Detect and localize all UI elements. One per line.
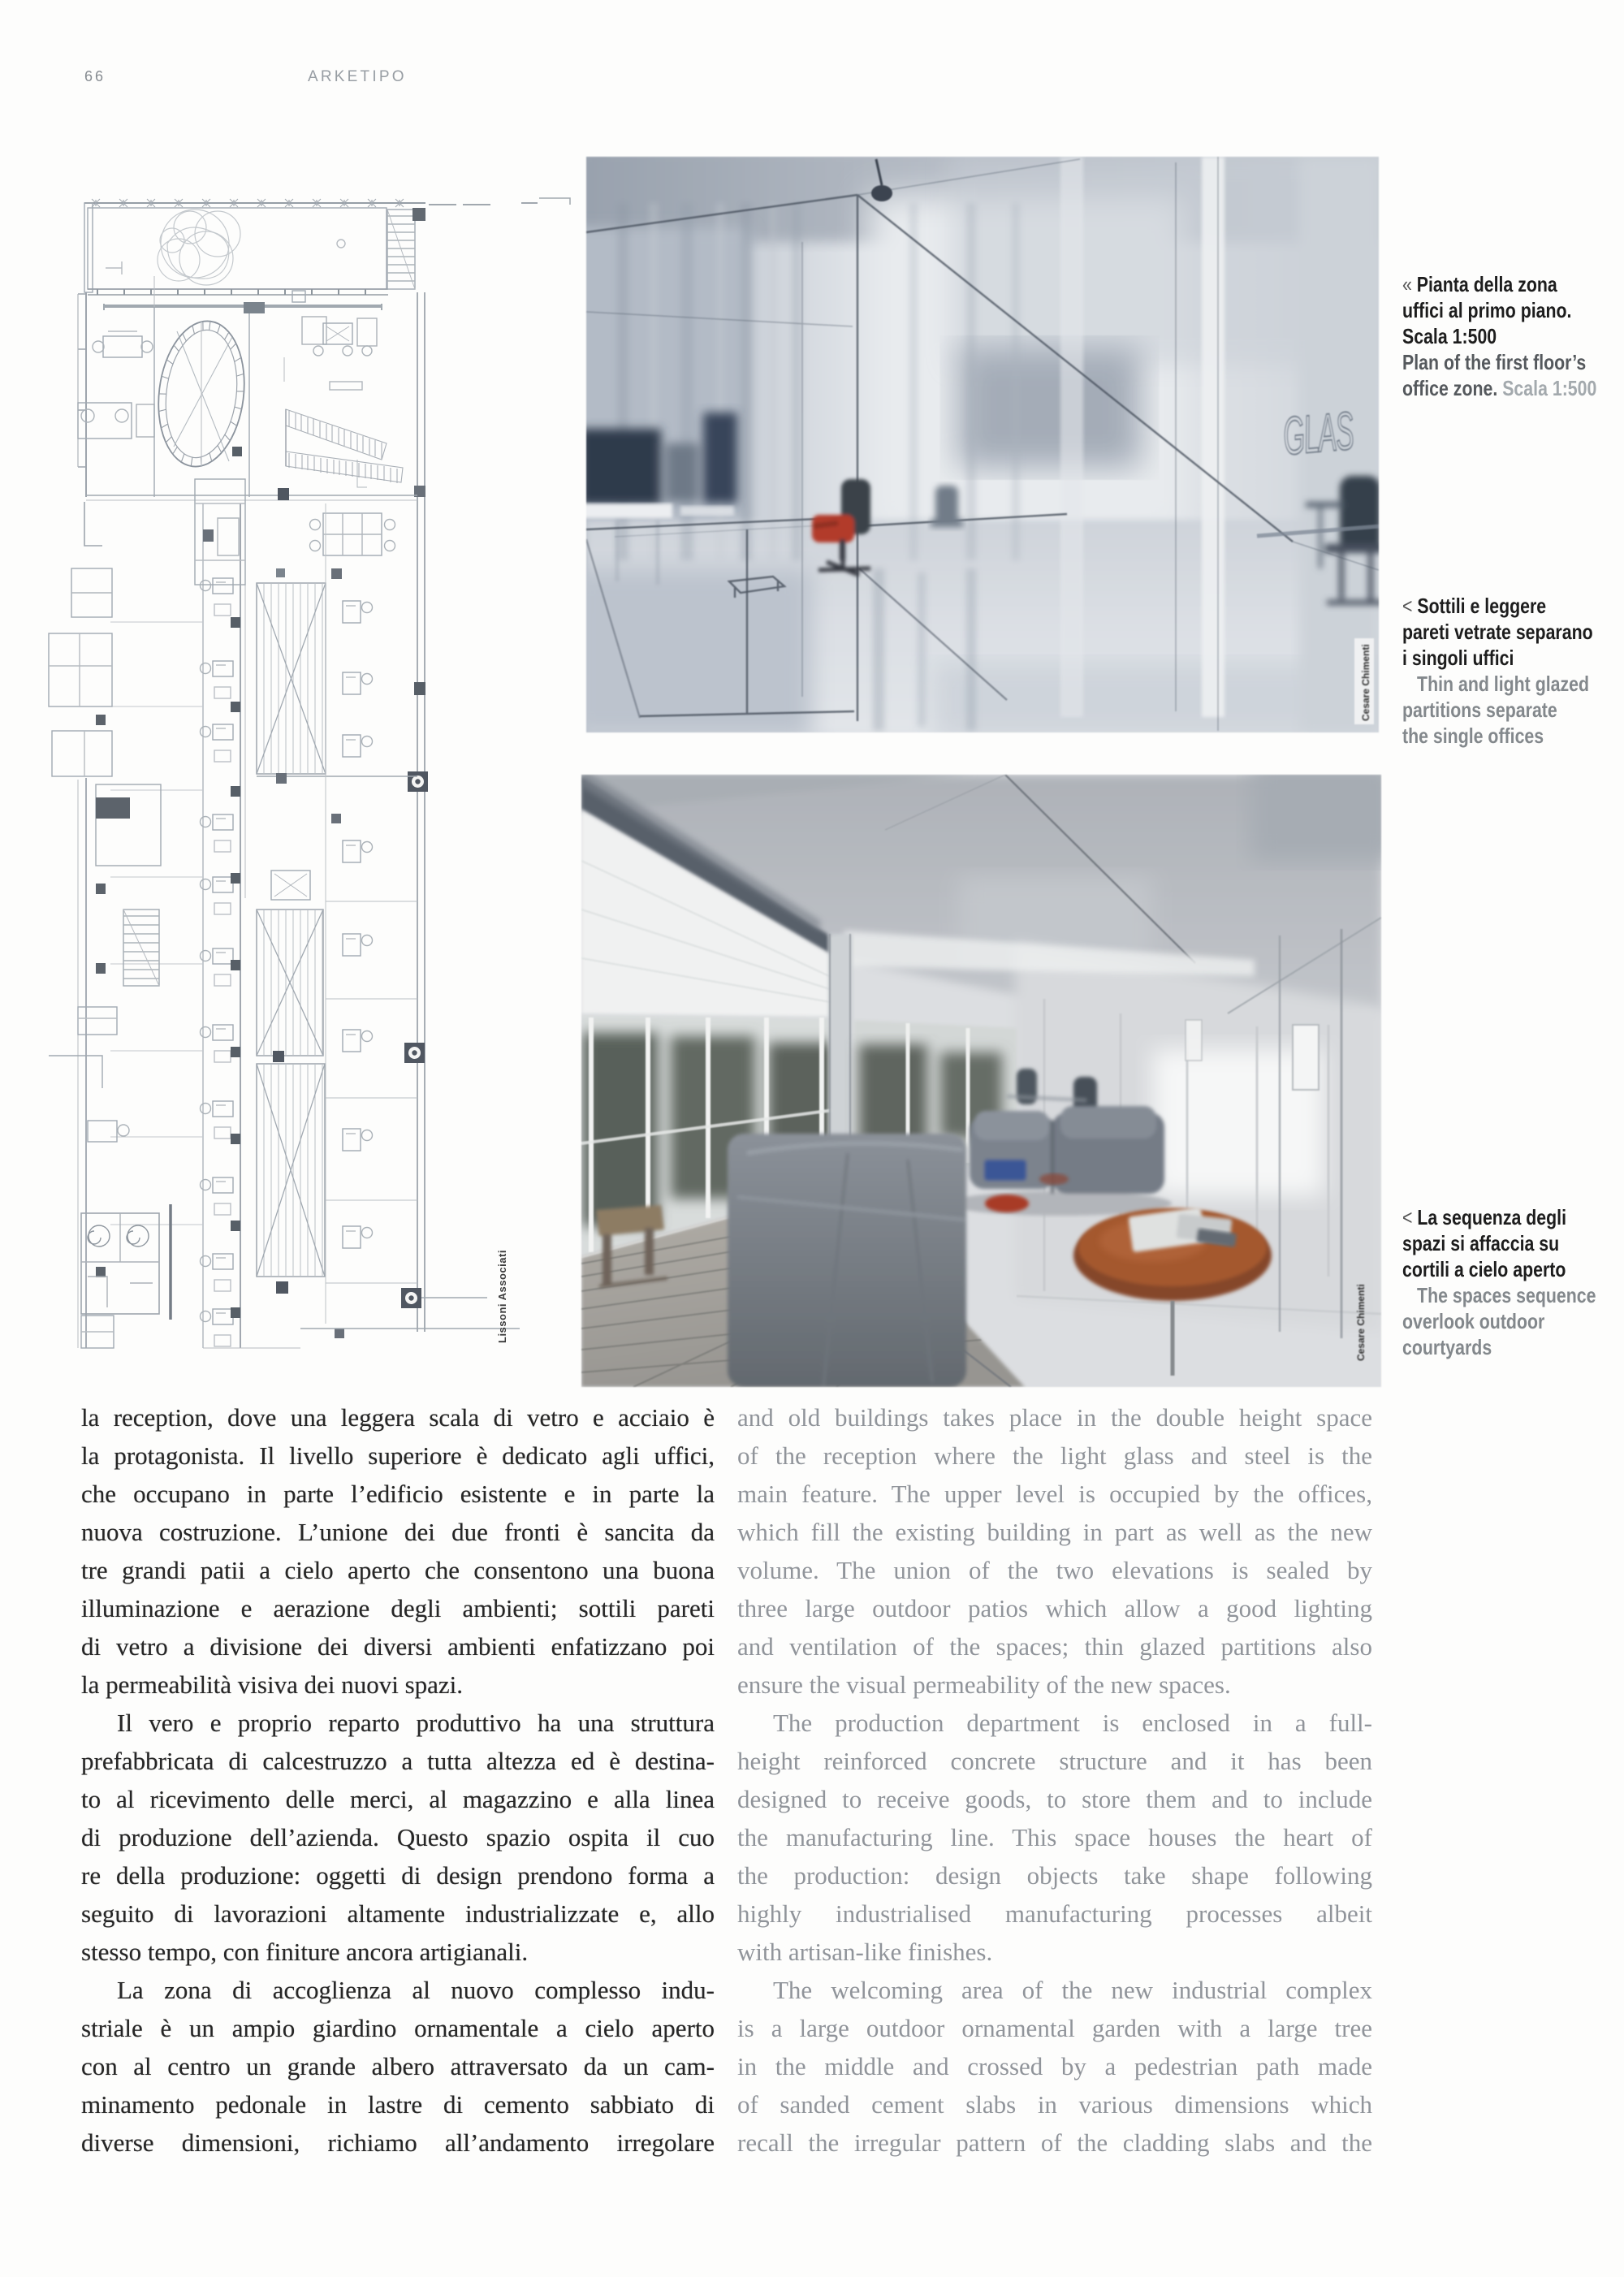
svg-text:Cesare Chimenti: Cesare Chimenti (1360, 644, 1371, 721)
svg-text:Cesare Chimenti: Cesare Chimenti (1355, 1284, 1367, 1361)
svg-text:GLAS: GLAS (1281, 400, 1356, 466)
